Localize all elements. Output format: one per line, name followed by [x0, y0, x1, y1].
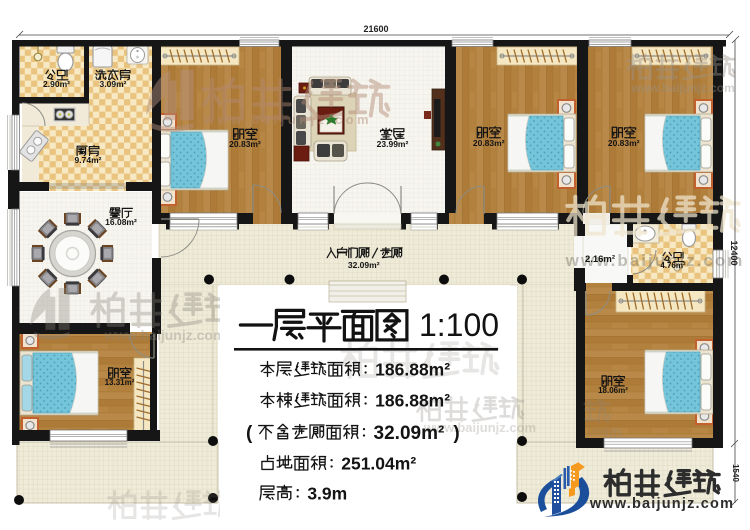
svg-text:186.88m²: 186.88m² — [375, 359, 450, 379]
svg-text:1540: 1540 — [731, 464, 740, 482]
svg-text:20.83m²: 20.83m² — [229, 139, 261, 149]
svg-text:2.16m²: 2.16m² — [585, 254, 615, 265]
svg-text:www.baijunjz.com: www.baijunjz.com — [589, 496, 734, 512]
svg-text:(: ( — [246, 423, 253, 444]
svg-text:2.90m²: 2.90m² — [43, 79, 70, 89]
svg-text:www.baijunjz.com: www.baijunjz.com — [104, 327, 226, 343]
svg-text:12400: 12400 — [729, 240, 739, 265]
svg-text:21600: 21600 — [363, 24, 388, 34]
svg-text:1:100: 1:100 — [419, 307, 499, 343]
svg-text:.com: .com — [589, 423, 622, 439]
svg-text:20.83m²: 20.83m² — [473, 138, 505, 148]
svg-text:32.09m²: 32.09m² — [374, 423, 445, 444]
svg-text:20.83m²: 20.83m² — [608, 138, 640, 148]
svg-text:3.09m²: 3.09m² — [100, 79, 127, 89]
svg-text:16.08m²: 16.08m² — [105, 217, 137, 227]
svg-text:13.31m²: 13.31m² — [105, 378, 135, 387]
svg-text:186.88m²: 186.88m² — [375, 390, 450, 410]
svg-text:18.06m²: 18.06m² — [598, 386, 628, 395]
svg-text:251.04m²: 251.04m² — [341, 453, 416, 473]
svg-text:4.76m²: 4.76m² — [660, 261, 686, 270]
svg-text:www.baijunjz.com: www.baijunjz.com — [203, 112, 372, 127]
svg-text:www.baijunjz.com: www.baijunjz.com — [630, 81, 735, 95]
svg-text:32.09m²: 32.09m² — [348, 260, 380, 270]
svg-text:9.74m²: 9.74m² — [75, 155, 102, 165]
svg-text:): ) — [453, 423, 459, 444]
svg-text:3.9m: 3.9m — [307, 483, 347, 503]
svg-text:23.99m²: 23.99m² — [377, 139, 409, 149]
